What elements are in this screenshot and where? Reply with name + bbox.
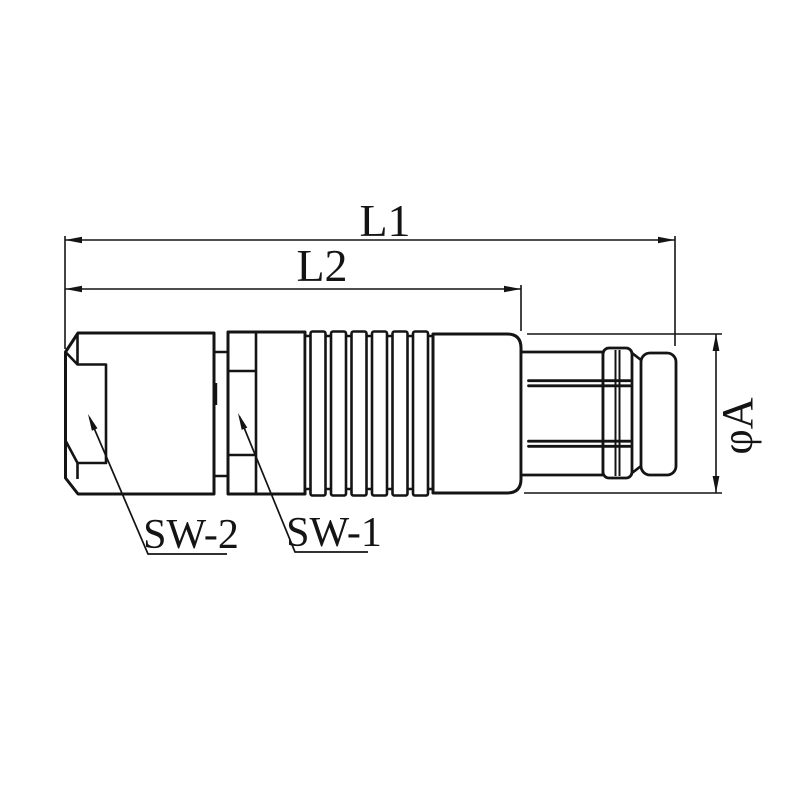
hex-nut-sw1-outline [228,332,305,494]
hex-nut-sw2-outline [66,333,215,494]
l2-dimension-label: L2 [296,240,347,291]
l2-arrowhead-left-icon [65,286,82,292]
technical-drawing-page: L1 L2 φA SW-2 SW-1 [0,0,800,800]
l1-arrowhead-right-icon [658,237,675,243]
grip-rib [393,332,408,496]
relief-neck [214,352,228,476]
grip-rib [352,332,367,496]
connector-drawing: L1 L2 φA SW-2 SW-1 [0,0,800,800]
grip-rib [331,332,346,496]
connector-body [66,332,677,496]
l1-dimension-label: L1 [359,195,410,246]
grip-rib [311,332,326,496]
l1-arrowhead-left-icon [65,237,82,243]
sw1-callout-label: SW-1 [286,510,382,556]
collet-tube [521,352,603,475]
sw2-callout-label: SW-2 [143,512,239,558]
grip-rib [413,332,428,496]
end-cap [641,353,676,475]
grip-rib [372,332,387,496]
barrel [433,334,521,493]
dia-arrowhead-top-icon [713,334,720,351]
collar-ring [603,348,632,478]
l2-arrowhead-right-icon [504,286,521,292]
dia-arrowhead-bottom-icon [713,476,720,493]
diameter-dimension-label: φA [713,397,762,454]
